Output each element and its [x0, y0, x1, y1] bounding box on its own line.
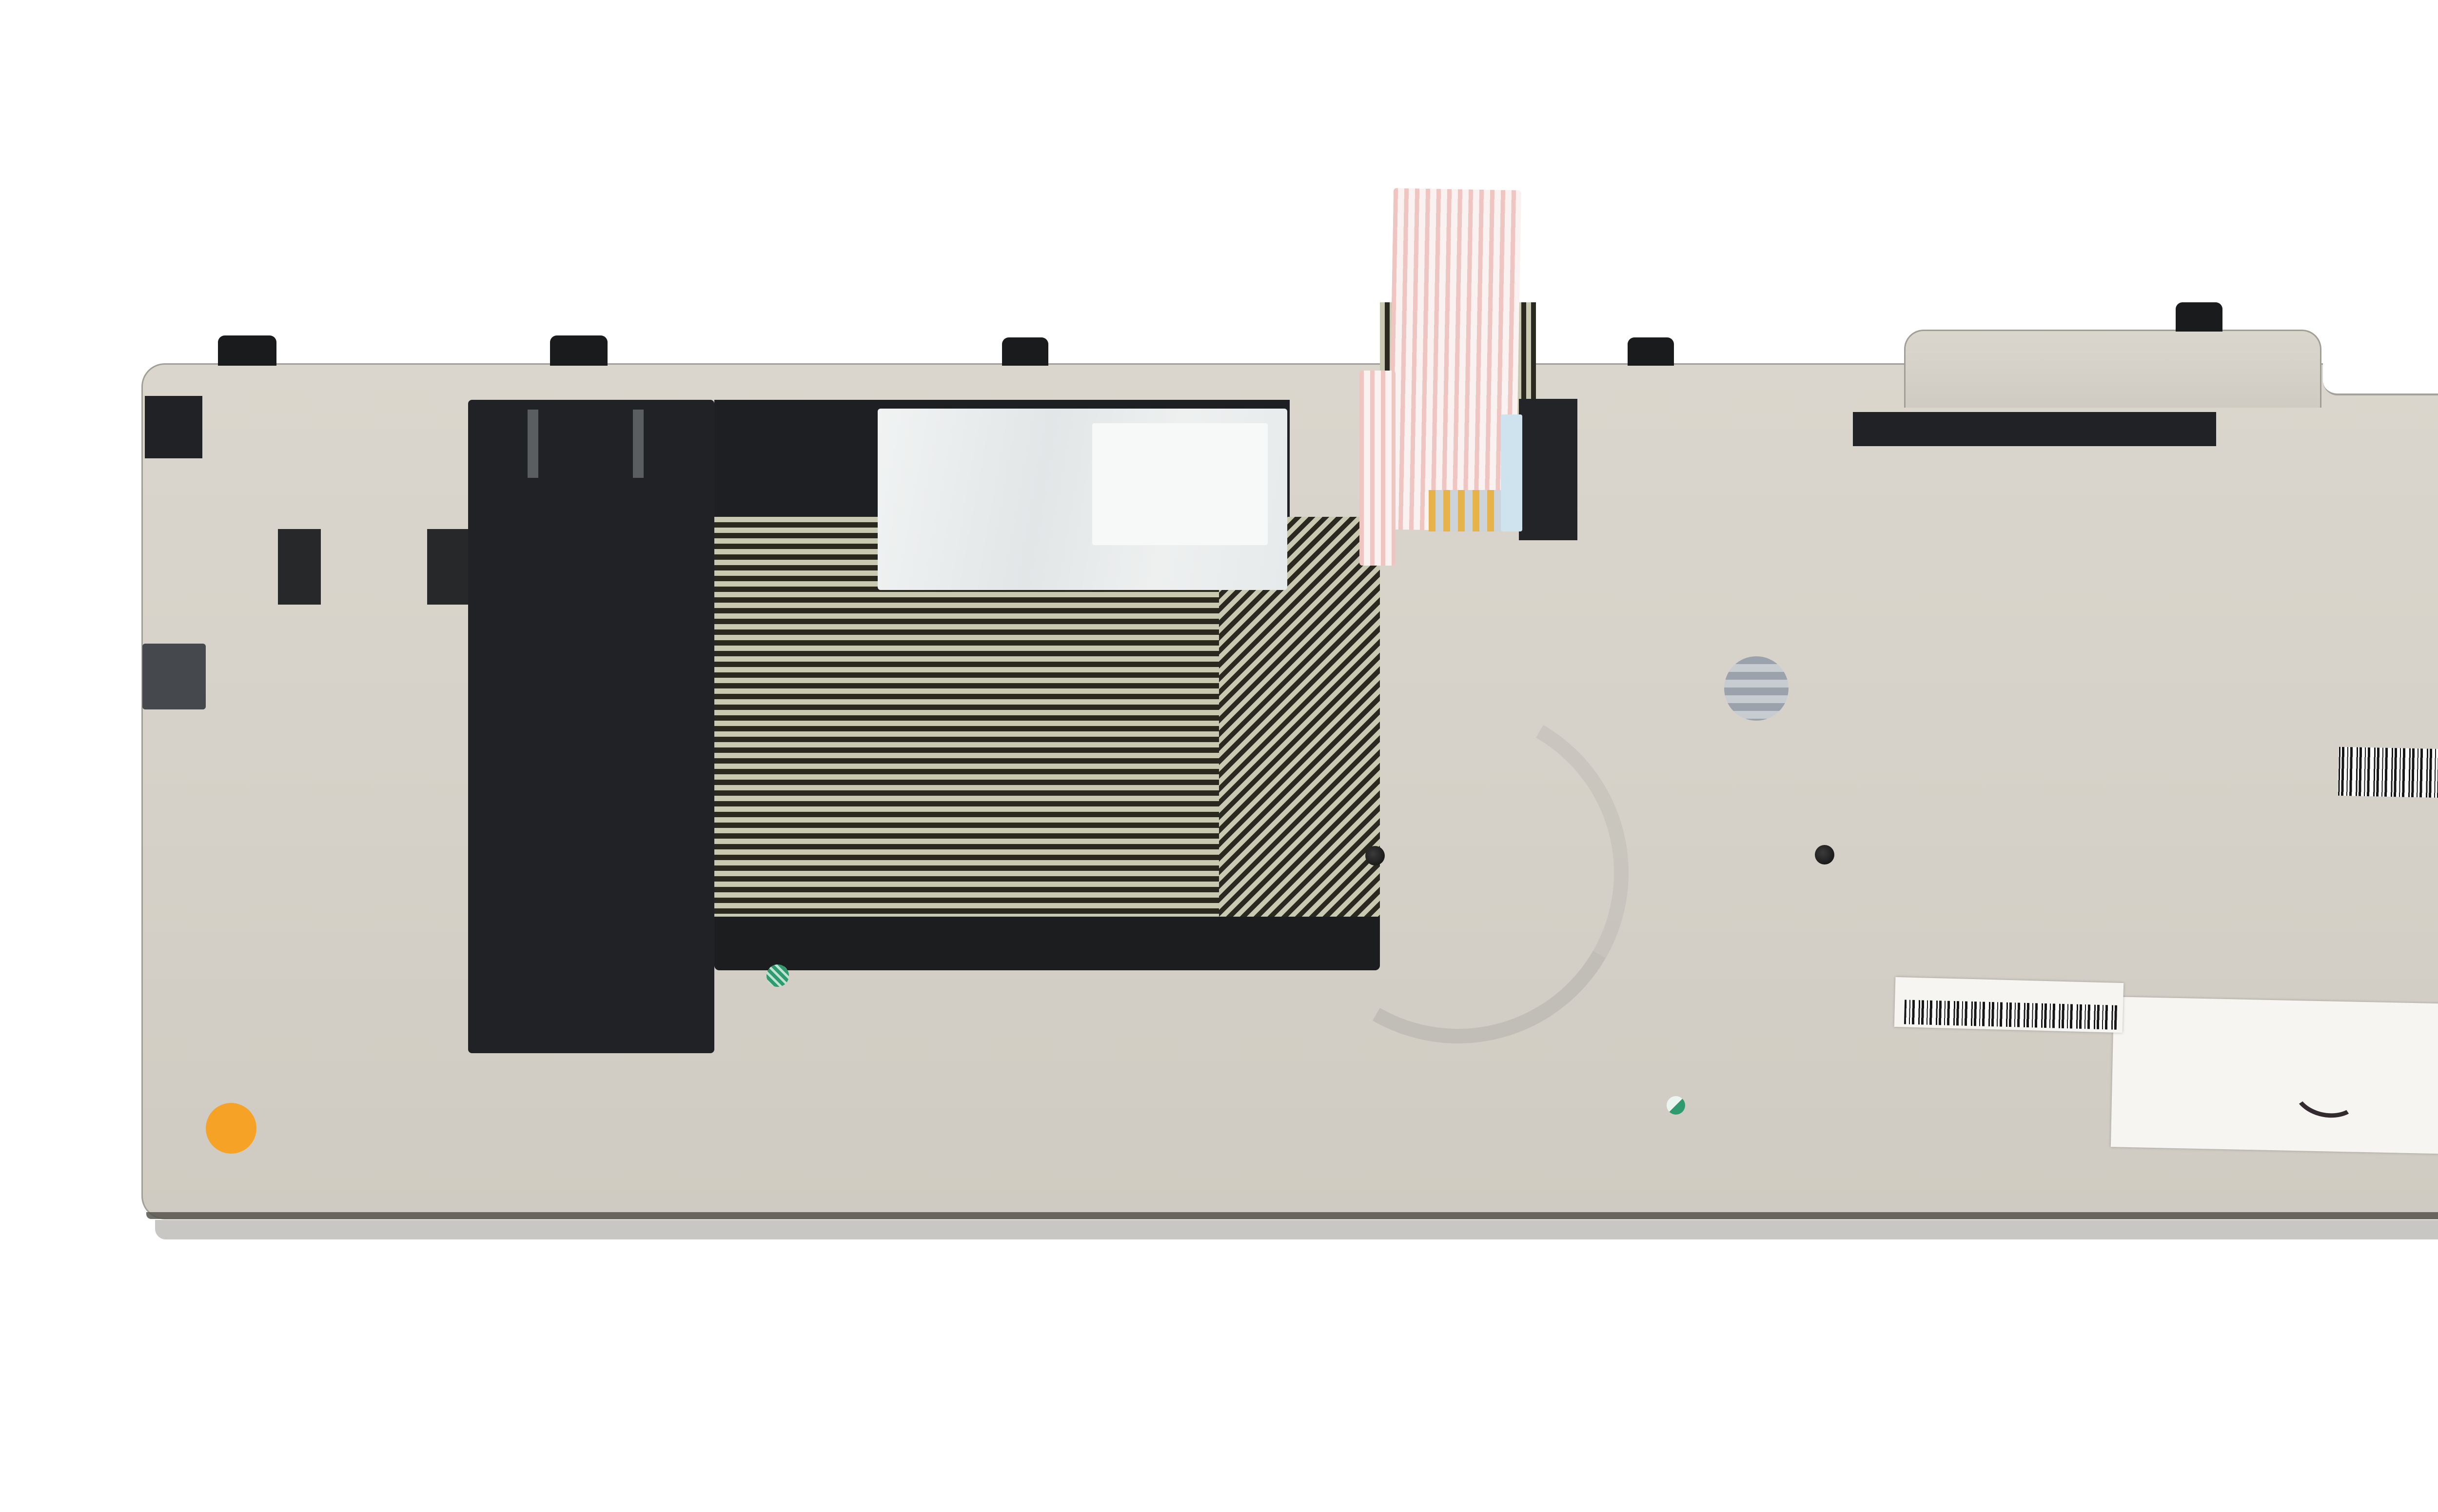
- metallic-tape: [878, 409, 1287, 590]
- void-label-barcode: [1904, 1000, 2117, 1029]
- void-label-note: [2099, 949, 2099, 962]
- ffc-side-strip: [1359, 371, 1396, 566]
- plate-cutout-large: [142, 644, 206, 709]
- backplate-bottom-edge: [146, 1212, 2438, 1219]
- mounting-tab: [2176, 302, 2222, 332]
- mounting-tab: [550, 335, 608, 366]
- green-qc-dot: [767, 964, 789, 987]
- mounting-tab: [1002, 337, 1048, 366]
- screw-hole: [1815, 845, 1834, 864]
- main-parts-label: [2111, 997, 2438, 1159]
- product-photo-keyboard-backplate: [0, 0, 2438, 1512]
- metallic-tape-highlight: [1092, 423, 1268, 545]
- cable-cover-slit: [633, 410, 644, 478]
- plate-stamp: [2107, 348, 2244, 374]
- void-label-code: [2098, 976, 2099, 989]
- mounting-tab: [1628, 337, 1674, 366]
- cable-cover: [468, 400, 714, 1053]
- plate-slot-bar: [1853, 412, 2216, 446]
- plate-cutout-large: [145, 396, 202, 458]
- ffc-blue-strip: [1501, 414, 1522, 531]
- ribbon-dark-band: [1519, 399, 1577, 540]
- ribbon-cable-edge: [714, 917, 1380, 970]
- main-label-barcode: [2338, 747, 2438, 803]
- main-label-cert-block: [2121, 742, 2285, 1144]
- orange-qc-dot: [206, 1103, 256, 1154]
- vent-hole: [1724, 656, 1789, 721]
- plate-cutout-large: [278, 529, 321, 605]
- mounting-tab: [218, 335, 276, 366]
- green-qc-dot: [1667, 1096, 1685, 1115]
- void-warranty-label: [1894, 977, 2124, 1033]
- cable-cover-slit: [528, 410, 538, 478]
